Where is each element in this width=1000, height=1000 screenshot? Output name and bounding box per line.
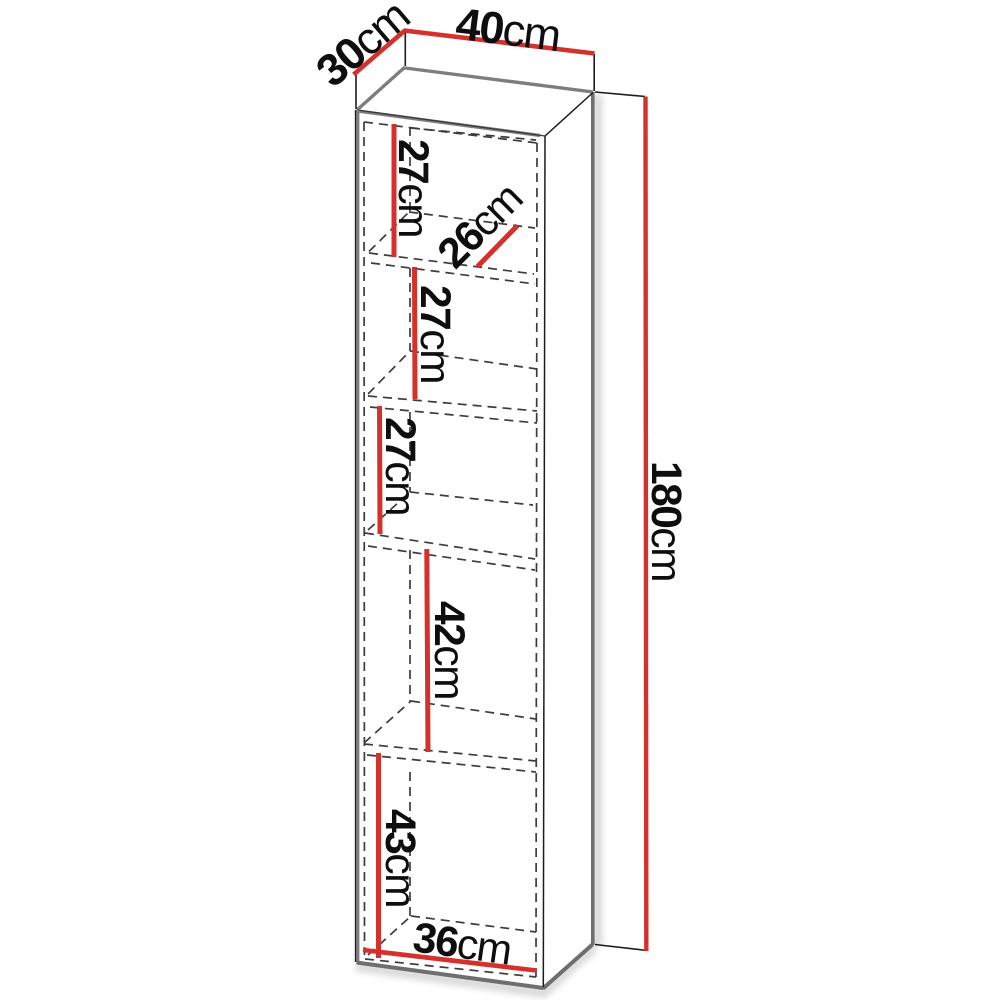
- svg-text:180cm: 180cm: [643, 461, 690, 581]
- svg-text:27cm: 27cm: [390, 139, 437, 237]
- svg-text:27cm: 27cm: [412, 285, 459, 383]
- svg-text:42cm: 42cm: [426, 601, 473, 699]
- svg-text:27cm: 27cm: [377, 417, 424, 515]
- svg-text:43cm: 43cm: [377, 809, 424, 907]
